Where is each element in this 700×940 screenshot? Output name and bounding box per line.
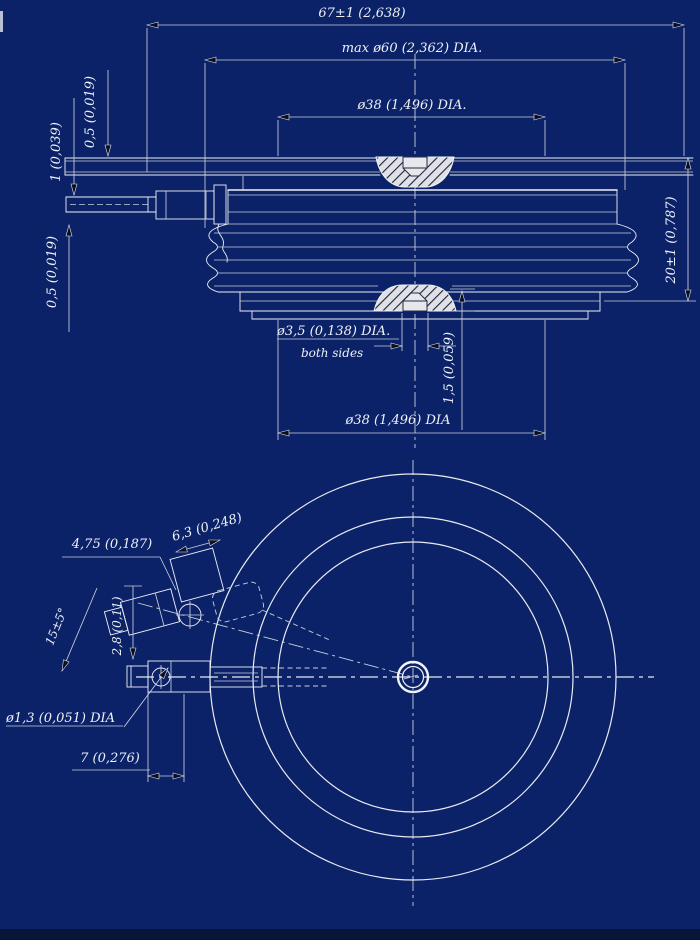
bottom-gate-recess xyxy=(403,301,427,311)
bottom-edge-strip xyxy=(0,929,700,940)
dim-pad-width-label: 4,75 (0,187) xyxy=(71,537,152,552)
dim-strip-bottom-label: 0,5 (0,019) xyxy=(45,236,60,308)
blueprint-page: 67±1 (2,638) max ø60 (2,362) DIA. ø38 (1… xyxy=(0,0,700,940)
technical-drawing: 67±1 (2,638) max ø60 (2,362) DIA. ø38 (1… xyxy=(0,0,700,940)
dim-center-hole-label: ø3,5 (0,138) DIA. xyxy=(276,324,390,339)
page-background xyxy=(0,0,700,940)
dim-center-hole-note: both sides xyxy=(301,346,363,360)
dim-lead-length-label: 7 (0,276) xyxy=(80,751,140,766)
dim-lead-offset-label: 2,8 (0,11) xyxy=(110,596,124,656)
dim-strip-top-label: 0,5 (0,019) xyxy=(83,76,98,148)
dim-height-label: 20±1 (0,787) xyxy=(664,196,679,284)
dim-max-dia-label: max ø60 (2,362) DIA. xyxy=(342,41,483,56)
dim-hole-dia-label: ø1,3 (0,051) DIA xyxy=(5,711,115,726)
dim-overall-width-label: 67±1 (2,638) xyxy=(318,6,405,21)
dim-recess-depth-label: 1,5 (0,059) xyxy=(442,332,457,404)
dim-tube-label: 1 (0,039) xyxy=(49,122,64,182)
dim-top-pole-dia-label: ø38 (1,496) DIA. xyxy=(356,98,466,113)
top-gate-recess xyxy=(403,157,427,168)
scan-edge-mark xyxy=(0,11,3,32)
dim-bottom-pole-dia-label: ø38 (1,496) DIA xyxy=(345,413,451,428)
